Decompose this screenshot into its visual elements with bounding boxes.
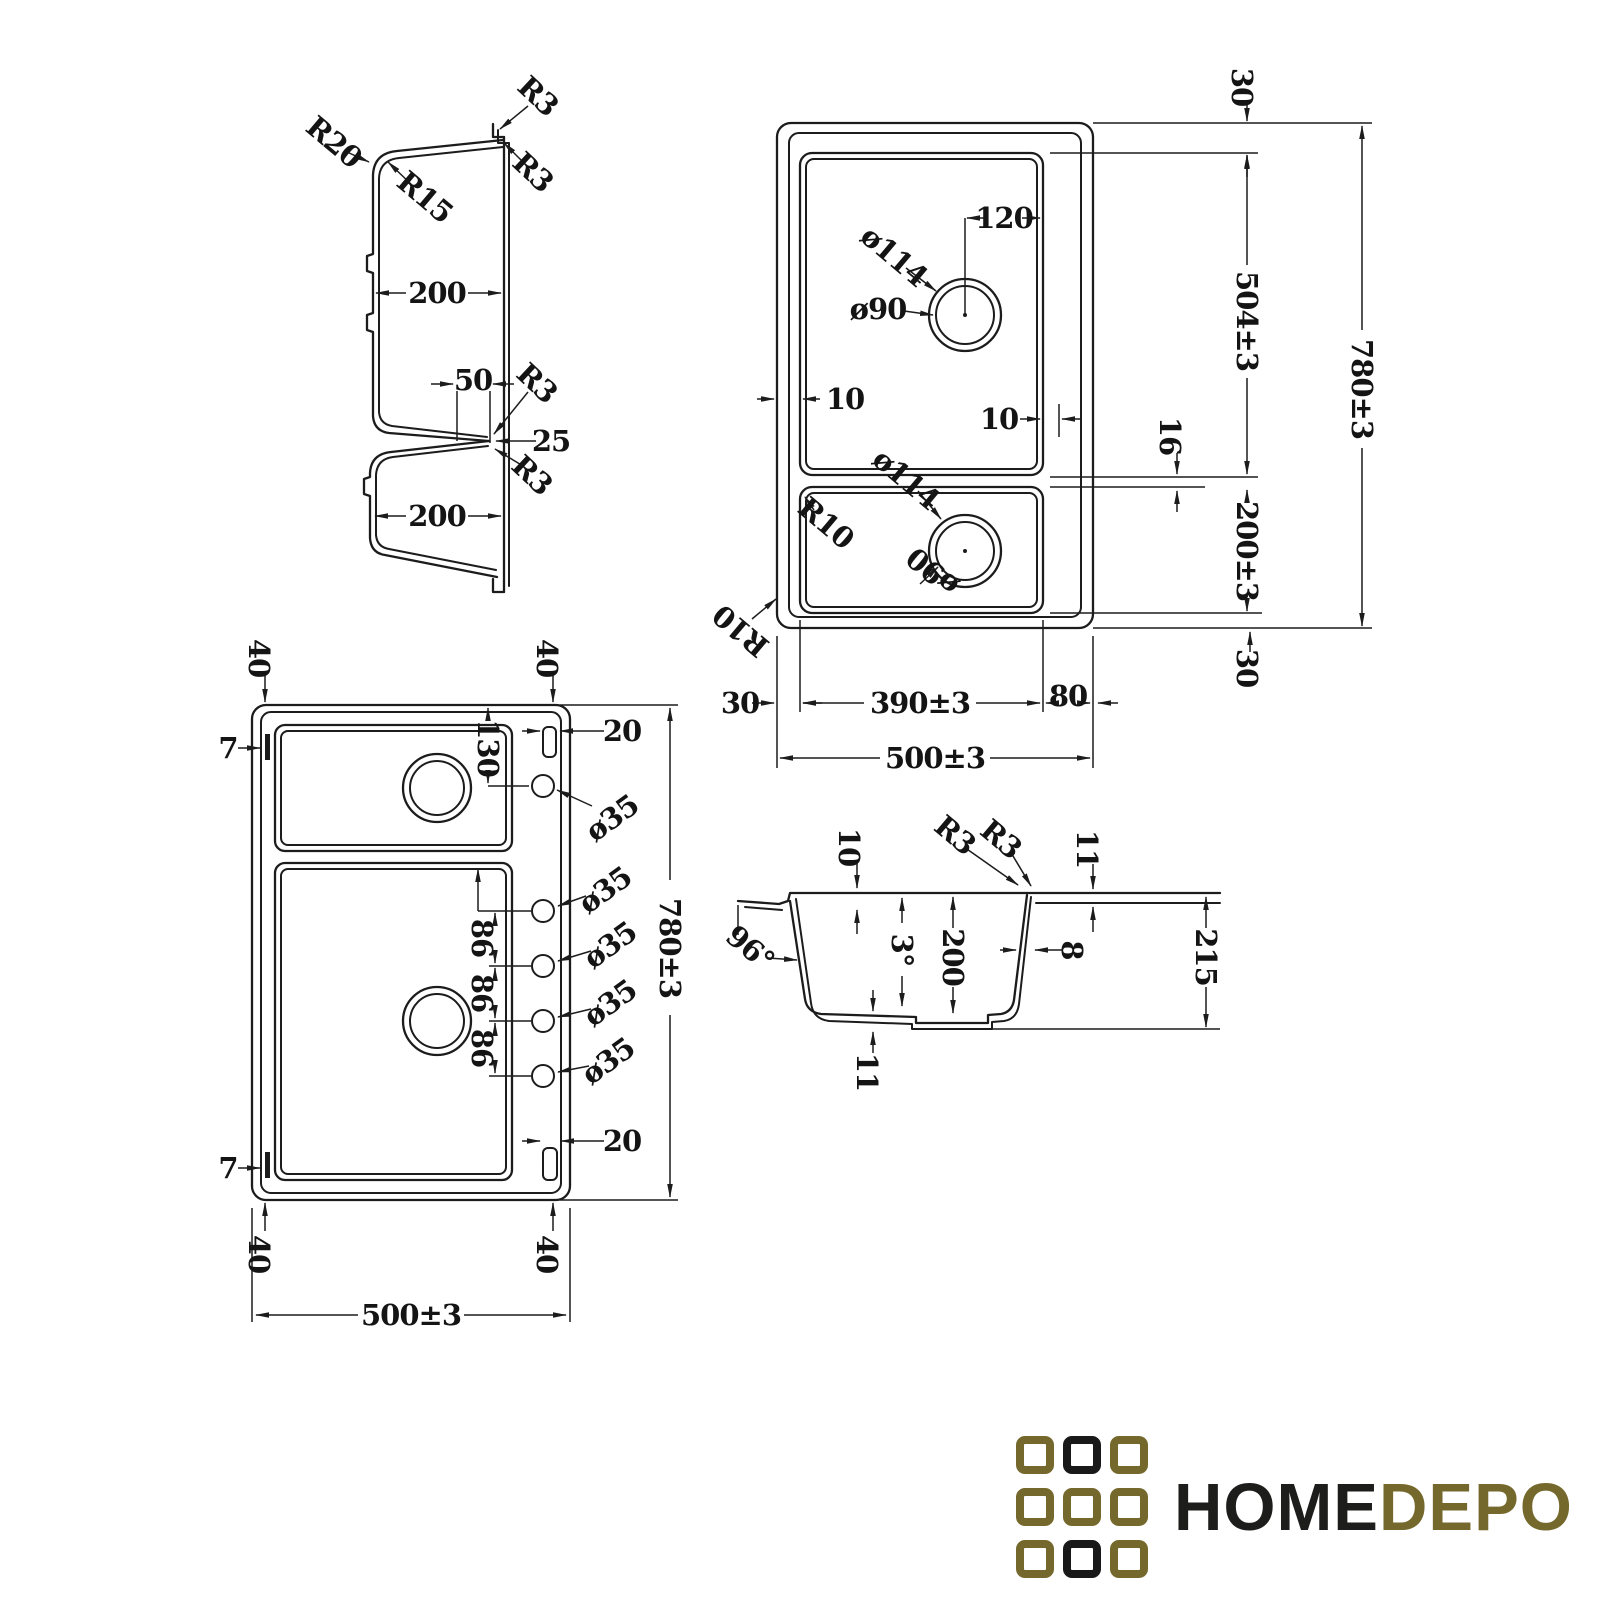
tap-hole-1 (532, 775, 554, 797)
logo-grid-cell (1063, 1540, 1101, 1578)
dim-label-50: 50 (454, 363, 492, 397)
dim-label-30-top: 30 (1225, 68, 1259, 106)
dim-label-7-bottom: 7 (218, 1151, 237, 1185)
dim-label-10-right: 10 (980, 402, 1018, 436)
dim-label-r20: R20 (300, 109, 369, 175)
drawing-canvas: R20 R15 R3 R3 200 50 R3 25 R3 200 (0, 0, 1600, 1600)
view-plan-top: 30 120 ø114 ø90 10 10 16 ø114 R10 ø90 R1… (707, 68, 1379, 775)
tap-hole-5 (532, 1065, 554, 1087)
logo-text-depo: DEPO (1379, 1470, 1573, 1545)
dim-label-500-top-view: 500±3 (885, 741, 985, 775)
dim-label-dia35-5: ø35 (575, 1031, 641, 1092)
dim-label-11-top: 11 (1070, 830, 1104, 868)
overflow-slot-bottom (543, 1148, 557, 1180)
dim-label-40-top-left: 40 (242, 639, 276, 677)
logo-grid-cell (1063, 1488, 1101, 1526)
dim-label-30-bottom: 30 (1230, 649, 1264, 687)
dim-label-215: 215 (1189, 928, 1223, 986)
dim-label-dia35-1: ø35 (579, 788, 645, 849)
dim-label-8-wall: 8 (1055, 940, 1089, 959)
drain-hole-small-bowl (403, 754, 471, 822)
dim-label-96deg: 96° (719, 918, 781, 977)
plan-top-dimensions (752, 103, 1372, 768)
overflow-slot-top (543, 727, 556, 757)
dim-label-10-depth: 10 (832, 828, 866, 866)
dim-label-200-bottom: 200 (408, 499, 466, 533)
tap-hole-3 (532, 955, 554, 977)
dim-label-25: 25 (532, 424, 570, 458)
brand-logo: HOMEDEPO (1016, 1436, 1573, 1578)
logo-text-home: HOME (1174, 1470, 1379, 1545)
dim-label-504: 504±3 (1230, 271, 1264, 371)
dim-label-7-top: 7 (218, 731, 237, 765)
dim-label-130: 130 (471, 719, 505, 777)
view-cross-section: 10 R3 R3 11 96° 3° 200 8 215 11 (719, 808, 1223, 1091)
dim-label-11-bottom: 11 (850, 1053, 884, 1091)
cross-section-outline (738, 893, 1220, 1029)
dim-label-dia90-top: ø90 (850, 292, 907, 326)
dim-label-200-top: 200 (408, 276, 466, 310)
dim-label-dia90-bottom: ø90 (900, 541, 965, 603)
dim-label-40-bottom-right: 40 (530, 1235, 564, 1273)
logo-grid-cell (1016, 1488, 1054, 1526)
dim-label-20-bottom: 20 (603, 1124, 641, 1158)
dim-label-dia114-bottom: ø114 (866, 442, 946, 517)
sink-technical-drawing-page: R20 R15 R3 R3 200 50 R3 25 R3 200 (0, 0, 1600, 1600)
logo-grid-cell (1110, 1540, 1148, 1578)
dim-label-120: 120 (975, 201, 1033, 235)
dim-label-86-2: 86 (465, 974, 499, 1012)
dim-label-dia35-2: ø35 (572, 860, 638, 921)
dim-label-80: 80 (1049, 679, 1087, 713)
dim-label-86-1: 86 (465, 919, 499, 957)
tap-hole-2 (532, 900, 554, 922)
dim-label-40-bottom-left: 40 (242, 1235, 276, 1273)
view-longitudinal-section: R20 R15 R3 R3 200 50 R3 25 R3 200 (300, 69, 571, 592)
drain-hole-large-bowl (403, 987, 471, 1055)
dim-label-30-left: 30 (721, 686, 759, 720)
logo-grid-cell (1110, 1436, 1148, 1474)
logo-grid-cell (1016, 1540, 1054, 1578)
dim-label-780-top-view: 780±3 (1345, 339, 1379, 439)
dim-label-16: 16 (1153, 417, 1187, 455)
logo-wordmark: HOMEDEPO (1174, 1469, 1573, 1546)
dim-label-r3-mid: R3 (510, 356, 564, 410)
mounting-clip-top (265, 734, 270, 760)
dim-label-dia35-4: ø35 (577, 973, 643, 1034)
view-plan-bottom: 40 40 7 20 130 ø35 ø35 86 ø35 86 ø35 86 … (218, 639, 687, 1332)
logo-grid-cell (1063, 1436, 1101, 1474)
dim-label-r3-top: R3 (511, 69, 565, 123)
dim-label-3deg: 3° (885, 934, 919, 967)
mounting-clip-bottom (265, 1152, 270, 1178)
dim-label-20-top: 20 (603, 714, 641, 748)
dim-label-780-bottom-view: 780±3 (653, 898, 687, 998)
logo-grid (1016, 1436, 1148, 1578)
dim-label-86-3: 86 (465, 1029, 499, 1067)
dim-label-200-plusminus: 200±3 (1230, 501, 1264, 601)
dim-label-dia35-3: ø35 (577, 915, 643, 976)
dim-label-40-top-right: 40 (530, 639, 564, 677)
dim-label-r10-bowl: R10 (792, 490, 861, 556)
tap-hole-4 (532, 1010, 554, 1032)
logo-grid-cell (1110, 1488, 1148, 1526)
dim-label-10-left: 10 (826, 382, 864, 416)
dim-label-390: 390±3 (870, 686, 970, 720)
dim-label-200-depth: 200 (936, 928, 970, 986)
plan-bottom-outline (252, 705, 570, 1200)
logo-grid-cell (1016, 1436, 1054, 1474)
dim-label-dia114-top: ø114 (854, 219, 934, 294)
dim-label-500-bottom-view: 500±3 (361, 1298, 461, 1332)
dim-label-r3-rim-right: R3 (974, 812, 1028, 865)
